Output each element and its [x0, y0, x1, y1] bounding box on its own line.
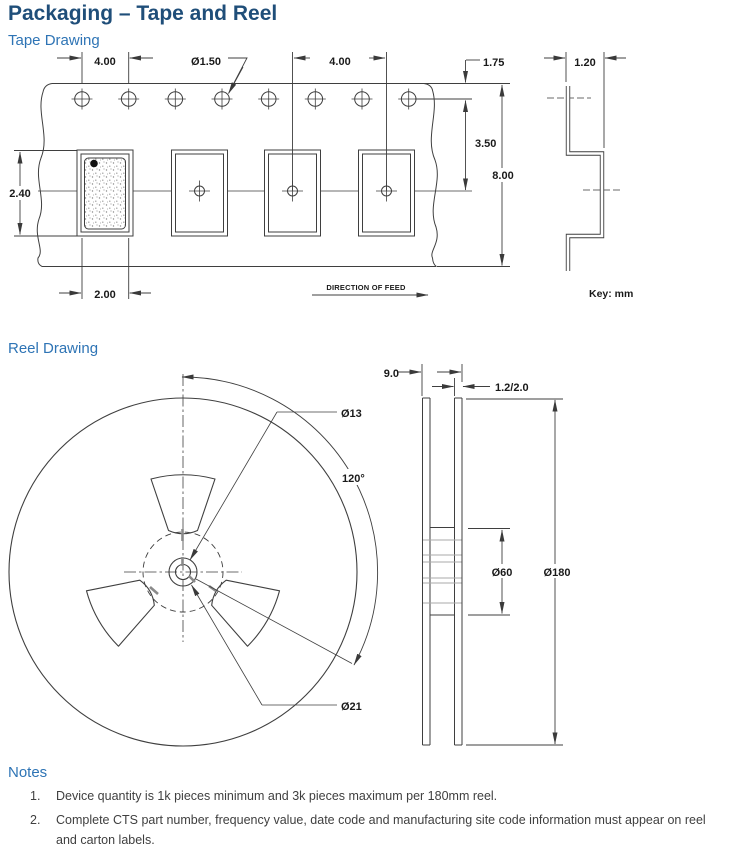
reel-leaders — [190, 412, 337, 705]
dim-pocket-pitch: 4.00 — [329, 56, 350, 68]
dim-inner-dia: Ø60 — [492, 567, 513, 579]
dim-hub-width: 9.0 — [384, 368, 399, 380]
direction-of-feed-label: DIRECTION OF FEED — [326, 283, 406, 292]
reel-side-view — [423, 398, 463, 745]
angle-ray — [196, 579, 352, 664]
tape-torn-edge-right — [424, 84, 437, 267]
tape-profile-view — [544, 52, 626, 271]
dim-flange-thickness: 1.2/2.0 — [495, 382, 529, 394]
dim-hole-pitch: 4.00 — [94, 56, 115, 68]
note-text: Complete CTS part number, frequency valu… — [56, 811, 722, 850]
dim-hole-dia: Ø1.50 — [191, 56, 221, 68]
component-in-pocket — [85, 158, 126, 229]
sprocket-holes — [72, 89, 420, 110]
tape-torn-edge-left — [37, 84, 52, 267]
dim-hub-dia: Ø21 — [341, 701, 362, 713]
dim-tape-width: 8.00 — [492, 170, 513, 182]
notes-list: 1. Device quantity is 1k pieces minimum … — [22, 787, 722, 852]
technical-drawing-canvas: 4.00 Ø1.50 4.00 1.75 1.20 3.50 8.00 2.40… — [0, 0, 740, 852]
dim-edge-to-hole: 1.75 — [483, 57, 504, 69]
note-item-2: 2. Complete CTS part number, frequency v… — [22, 811, 722, 850]
dim-pocket-height: 2.40 — [9, 188, 30, 200]
angle-arc — [182, 377, 378, 665]
pin1-dot — [90, 160, 98, 168]
note-text: Device quantity is 1k pieces minimum and… — [56, 787, 722, 806]
note-number: 1. — [22, 787, 56, 806]
tape-pockets — [38, 150, 472, 236]
dim-window-angle: 120° — [342, 473, 365, 485]
reel-front-view — [9, 374, 378, 746]
dim-hole-to-pocket: 3.50 — [475, 138, 496, 150]
reel-outer-circle — [9, 398, 357, 746]
key-mm-label: Key: mm — [589, 288, 633, 300]
note-number: 2. — [22, 811, 56, 850]
dim-outer-dia: Ø180 — [544, 567, 571, 579]
dim-center-hole: Ø13 — [341, 408, 362, 420]
dim-tape-thickness: 1.20 — [574, 57, 595, 69]
pocket-crosshairs — [189, 181, 397, 202]
note-item-1: 1. Device quantity is 1k pieces minimum … — [22, 787, 722, 806]
dim-pocket-width: 2.00 — [94, 289, 115, 301]
datasheet-page: Packaging – Tape and Reel Tape Drawing R… — [0, 0, 740, 852]
reel-dimensions — [397, 364, 563, 745]
